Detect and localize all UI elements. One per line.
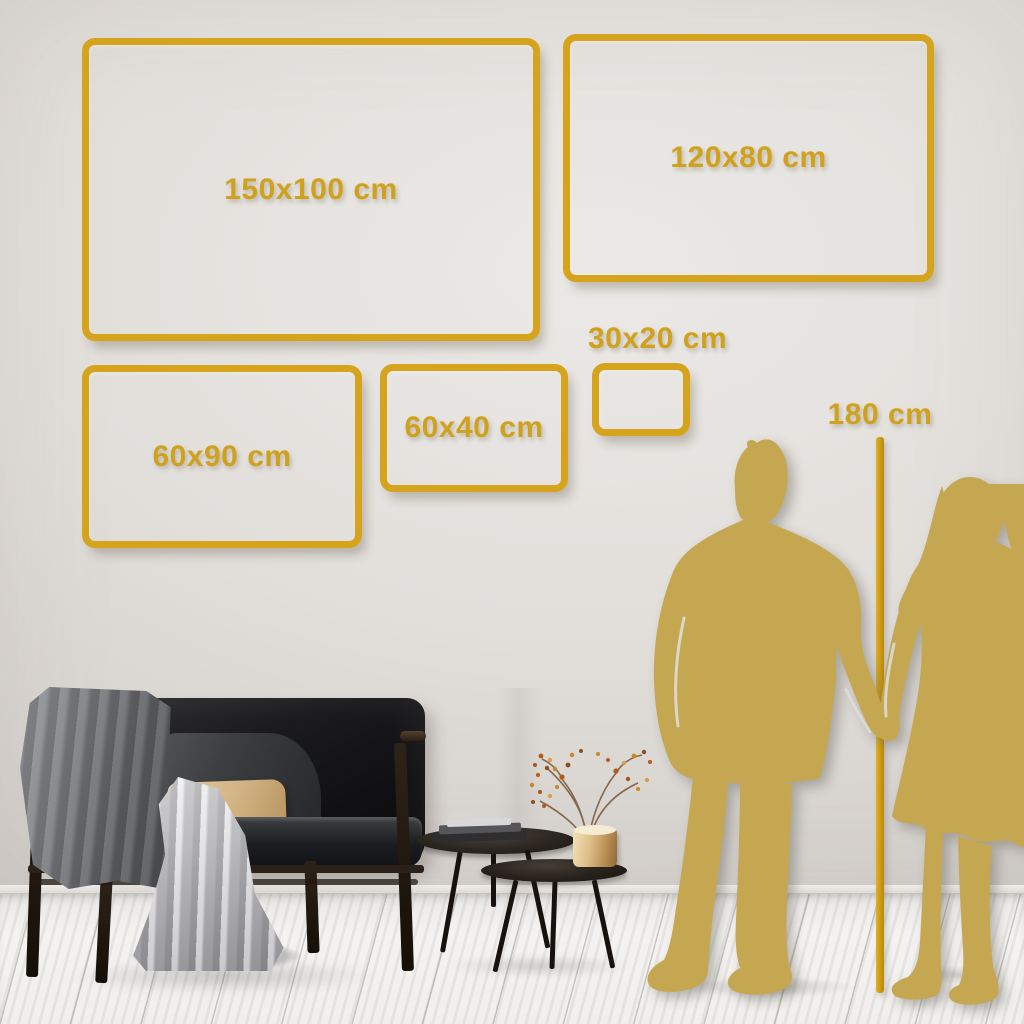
- table-leg: [440, 849, 463, 952]
- frame-30x20: [592, 363, 690, 436]
- table-floor-shadow: [415, 951, 665, 981]
- frame-label-60x90: 60x90 cm: [152, 440, 291, 474]
- frame-150x100: 150x100 cm: [82, 38, 540, 341]
- frame-120x80: 120x80 cm: [563, 34, 934, 282]
- plant-berries: [530, 749, 652, 808]
- couple-silhouette: [640, 428, 1024, 1012]
- brass-vase: [573, 829, 617, 867]
- frame-60x90: 60x90 cm: [82, 365, 362, 548]
- frame-label-60x40: 60x40 cm: [404, 411, 543, 445]
- height-label: 180 cm: [820, 398, 940, 432]
- woman-silhouette: [879, 477, 1024, 1005]
- frame-60x40: 60x40 cm: [380, 364, 568, 492]
- frame-label-120x80: 120x80 cm: [670, 141, 826, 175]
- sofa-leg: [304, 861, 319, 953]
- frame-label-150x100: 150x100 cm: [224, 173, 398, 207]
- size-guide-scene: 150x100 cm 120x80 cm 60x90 cm 60x40 cm 3…: [0, 0, 1024, 1024]
- frame-label-30x20: 30x20 cm: [588, 322, 727, 356]
- sofa: [18, 685, 430, 1015]
- gray-blanket: [20, 687, 182, 889]
- table-leg: [491, 851, 496, 907]
- man-silhouette: [647, 439, 887, 994]
- coffee-tables: [415, 733, 670, 988]
